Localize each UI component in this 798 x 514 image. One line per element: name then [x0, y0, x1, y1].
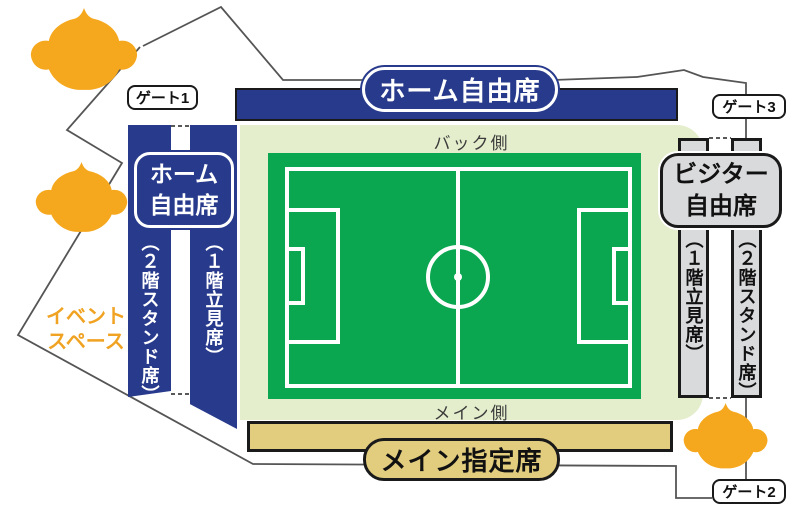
gate-1-text: ゲート1 — [136, 87, 189, 108]
visitor-2f-stand-text: （２階スタンド席） — [738, 230, 756, 395]
home-left-1f-standing-text: （１階立見席） — [205, 233, 223, 366]
home-free-seat-top-label: ホーム自由席 — [362, 67, 558, 112]
main-reserved-seat-text: メイン指定席 — [380, 441, 542, 478]
home-left-label-line1: ホーム — [150, 159, 218, 190]
visitor-free-seat-label: ビジター 自由席 — [660, 153, 782, 228]
back-side-label: バック側 — [240, 129, 703, 154]
event-space-line1: イベント — [40, 305, 132, 330]
visitor-label-line1: ビジター — [673, 159, 769, 190]
pitch-markings — [268, 153, 641, 399]
soccer-pitch — [268, 153, 641, 399]
home-left-label-line2: 自由席 — [150, 190, 219, 221]
home-free-seat-left-label: ホーム 自由席 — [134, 152, 234, 228]
home-free-seat-top-text: ホーム自由席 — [379, 71, 540, 108]
event-space-line2: スペース — [40, 330, 132, 355]
stadium-seating-map: バック側 メイン側 ホーム自由席 （２階スタンド席） （１階立見席） ホーム 自… — [0, 0, 798, 514]
gate-2-label: ゲート2 — [712, 479, 786, 504]
gate-2-text: ゲート2 — [722, 481, 775, 502]
event-space-label: イベント スペース — [40, 305, 132, 355]
gate-3-text: ゲート3 — [722, 96, 775, 117]
home-left-2f-stand-text: （２階スタンド席） — [141, 233, 159, 397]
main-reserved-seat-label: メイン指定席 — [363, 438, 560, 481]
gate-3-label: ゲート3 — [712, 94, 786, 119]
visitor-label-line2: 自由席 — [685, 191, 757, 222]
visitor-1f-standing-text: （１階立見席） — [685, 230, 703, 363]
gate-1-label: ゲート1 — [127, 85, 198, 110]
